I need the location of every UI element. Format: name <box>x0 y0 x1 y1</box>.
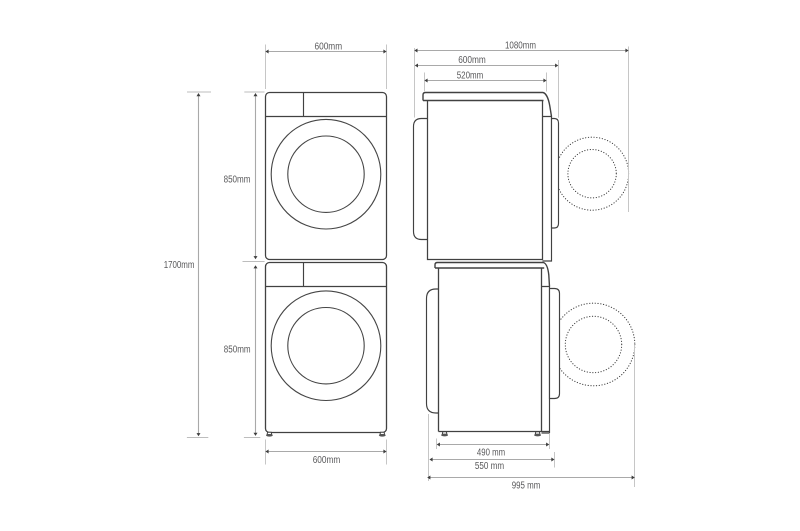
svg-text:850mm: 850mm <box>224 174 251 185</box>
svg-text:1700mm: 1700mm <box>164 260 195 271</box>
svg-text:850mm: 850mm <box>224 344 251 355</box>
svg-text:1080mm: 1080mm <box>505 40 536 51</box>
svg-text:550 mm: 550 mm <box>475 461 504 472</box>
svg-text:600mm: 600mm <box>313 455 341 466</box>
svg-text:520mm: 520mm <box>457 71 484 82</box>
svg-text:490 mm: 490 mm <box>477 447 505 458</box>
svg-text:995 mm: 995 mm <box>512 481 541 492</box>
svg-text:600mm: 600mm <box>458 55 486 66</box>
svg-text:600mm: 600mm <box>315 41 343 52</box>
